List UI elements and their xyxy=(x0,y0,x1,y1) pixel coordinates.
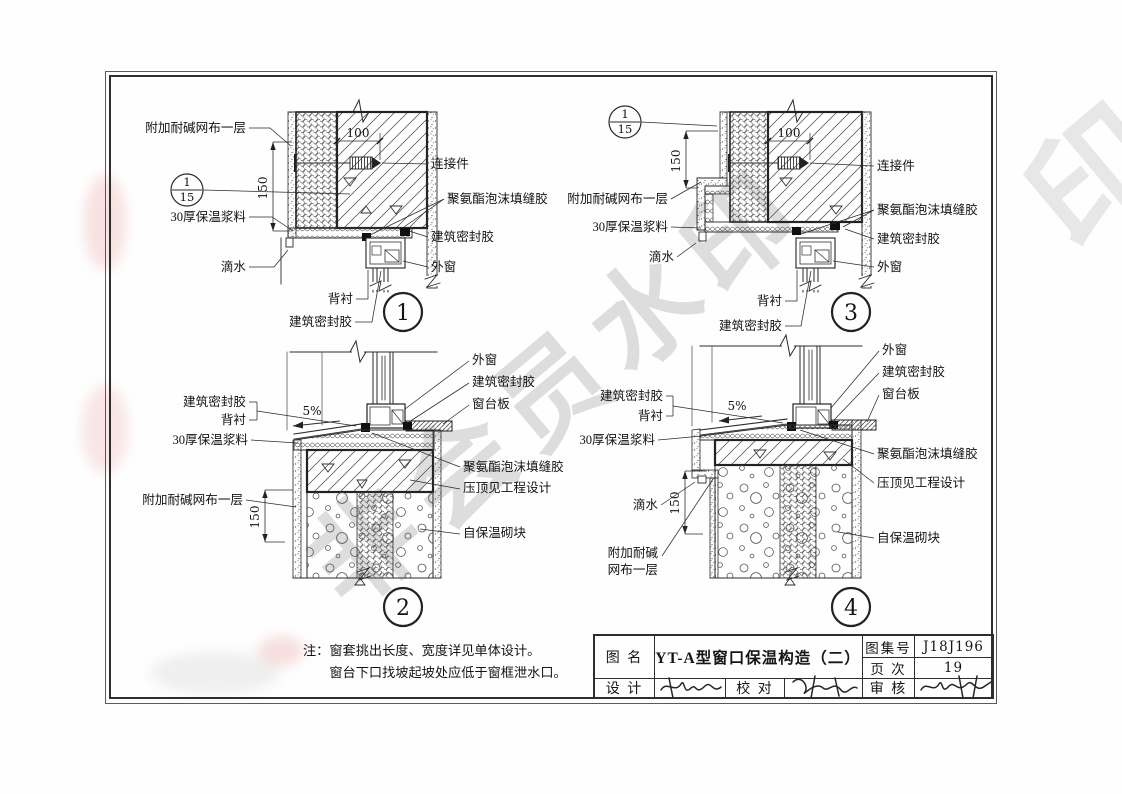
d3-label-drip: 滴水 xyxy=(649,249,675,264)
d3-ref-number: 1 xyxy=(621,107,628,121)
note-line-1: 窗套挑出长度、宽度详见单体设计。 xyxy=(329,640,566,662)
auditor-label: 审 核 xyxy=(863,678,914,697)
d2-dim-150: 150 xyxy=(248,506,262,529)
d3-ref-scale: 15 xyxy=(618,122,633,136)
d1-label-backing: 背衬 xyxy=(328,292,354,306)
d3-label-sealant-bottom: 建筑密封胶 xyxy=(719,318,782,333)
d1-label-window: 外窗 xyxy=(431,260,456,274)
d2-label-sealant: 建筑密封胶 xyxy=(472,374,535,389)
atlas-number-label: 图集号 xyxy=(863,636,914,657)
d4-label-mortar30: 30厚保温浆料 xyxy=(579,433,655,447)
d4-dim-150: 150 xyxy=(668,492,682,515)
d2-label-pu-foam: 聚氨酯泡沫填缝胶 xyxy=(463,459,564,474)
d1-label-pu-foam: 聚氨酯泡沫填缝胶 xyxy=(447,191,548,206)
d1-label-mesh: 附加耐碱网布一层 xyxy=(145,121,246,135)
drawing-title: YT-A型窗口保温构造（二） xyxy=(655,636,861,678)
d2-label-window: 外窗 xyxy=(472,353,497,367)
svg-text:1: 1 xyxy=(396,301,410,326)
drawing-sheet: { "sheet": { "watermark": "非会员水印", "wate… xyxy=(0,0,1122,794)
d1-label-sealant-bottom: 建筑密封胶 xyxy=(289,314,352,329)
d1-dim-150: 150 xyxy=(256,177,270,200)
d1-ref-number: 1 xyxy=(183,175,190,189)
d3-label-pu-foam: 聚氨酯泡沫填缝胶 xyxy=(877,202,978,217)
fig-name-label: 图 名 xyxy=(595,636,654,678)
d1-label-connector: 连接件 xyxy=(431,156,469,171)
detail-4-number-badge: 4 xyxy=(832,588,870,626)
d4-label-mesh-line1: 附加耐碱 xyxy=(608,546,659,560)
designer-label: 设 计 xyxy=(595,678,654,697)
d4-label-pu-foam: 聚氨酯泡沫填缝胶 xyxy=(877,446,978,461)
d4-label-block: 自保温砌块 xyxy=(877,531,940,545)
svg-text:3: 3 xyxy=(844,301,858,326)
page-number-label: 页 次 xyxy=(863,657,914,678)
d3-label-sealant: 建筑密封胶 xyxy=(877,231,940,246)
detail-4-drawing xyxy=(692,335,876,585)
d4-slope: 5% xyxy=(727,399,746,413)
d4-label-coping: 压顶见工程设计 xyxy=(877,476,966,490)
d4-label-sealant: 建筑密封胶 xyxy=(882,364,945,379)
proofreader-label: 校 对 xyxy=(726,678,784,697)
svg-text:2: 2 xyxy=(396,596,410,621)
d2-label-coping: 压顶见工程设计 xyxy=(463,481,552,495)
d4-label-drip: 滴水 xyxy=(633,497,659,512)
d3-label-window: 外窗 xyxy=(877,260,902,274)
d3-dim-100: 100 xyxy=(778,126,801,140)
note-line-2: 窗台下口找坡起坡处应低于窗框泄水口。 xyxy=(329,662,566,684)
d2-label-block: 自保温砌块 xyxy=(463,526,526,540)
d4-label-backing: 背衬 xyxy=(638,409,664,423)
d2-label-mortar30: 30厚保温浆料 xyxy=(172,433,248,447)
d2-slope: 5% xyxy=(302,404,321,418)
detail-2-number-badge: 2 xyxy=(384,588,422,626)
d4-label-sealant-left: 建筑密封胶 xyxy=(600,388,663,403)
note-label: 注： xyxy=(303,640,329,685)
d2-label-sill-board: 窗台板 xyxy=(472,397,510,411)
detail-1-number-badge: 1 xyxy=(384,293,422,331)
d2-label-sealant-left: 建筑密封胶 xyxy=(183,394,246,409)
d4-label-window: 外窗 xyxy=(882,343,907,357)
d3-label-backing: 背衬 xyxy=(757,294,783,308)
d3-label-connector: 连接件 xyxy=(877,158,915,173)
d1-label-sealant: 建筑密封胶 xyxy=(431,229,494,244)
d3-label-mesh: 附加耐碱网布一层 xyxy=(567,192,668,206)
d1-dim-100: 100 xyxy=(347,126,370,140)
d3-dim-150: 150 xyxy=(669,150,683,173)
detail-3-number-badge: 3 xyxy=(832,293,870,331)
svg-text:4: 4 xyxy=(844,596,858,621)
atlas-number-value: J18J196 xyxy=(915,636,992,657)
d1-label-drip: 滴水 xyxy=(221,259,247,274)
d3-label-mortar30: 30厚保温浆料 xyxy=(592,220,668,234)
detail-2-drawing xyxy=(287,341,452,585)
d1-ref-scale: 15 xyxy=(180,190,195,204)
sheet-note: 注： 窗套挑出长度、宽度详见单体设计。 窗台下口找坡起坡处应低于窗框泄水口。 xyxy=(303,640,567,685)
d1-label-mortar30: 30厚保温浆料 xyxy=(170,210,246,224)
d4-label-mesh-line2: 网布一层 xyxy=(608,563,658,577)
d2-label-mesh: 附加耐碱网布一层 xyxy=(142,493,243,507)
title-block: 图 名 YT-A型窗口保温构造（二） 图集号 J18J196 页 次 19 设 … xyxy=(593,634,994,699)
page-number-value: 19 xyxy=(915,657,992,678)
d2-label-backing: 背衬 xyxy=(221,413,247,427)
d4-label-sill-board: 窗台板 xyxy=(882,387,920,401)
